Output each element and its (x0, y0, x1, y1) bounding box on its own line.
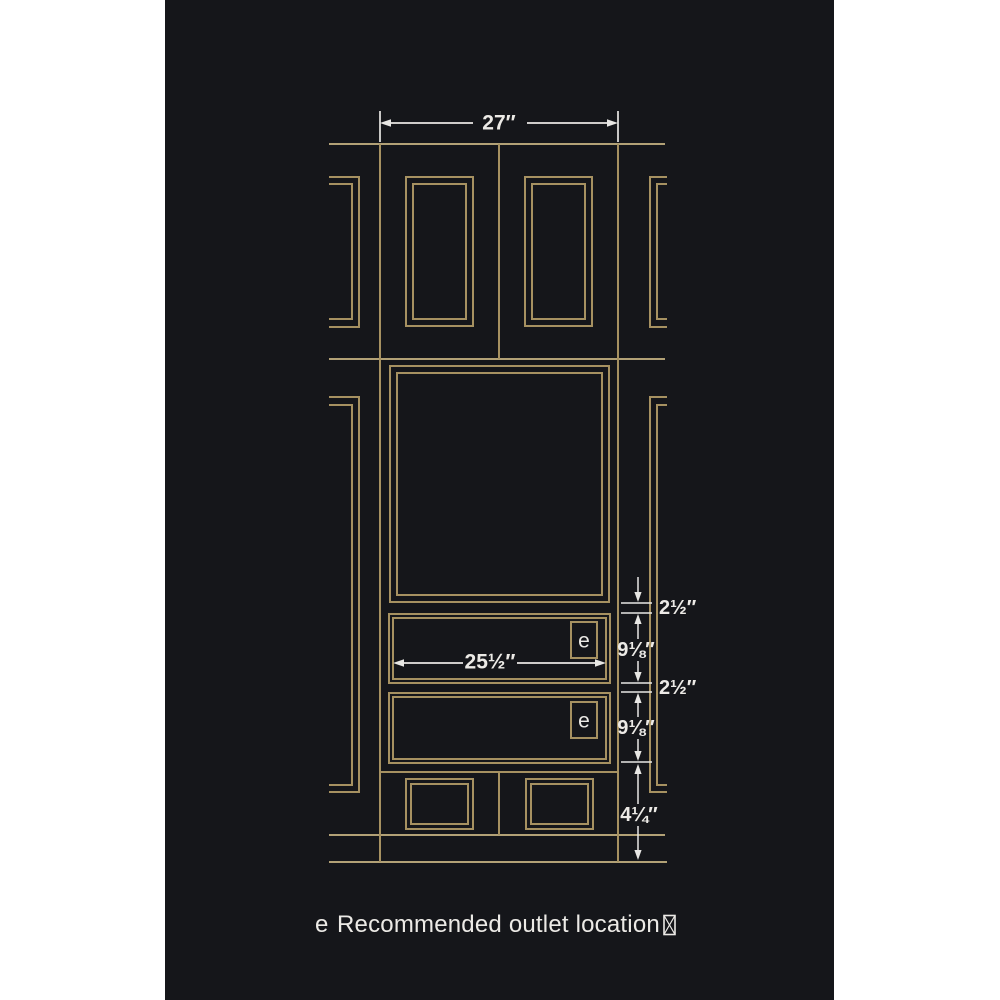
dim-label-drawer-1-height: 9⅛″ (617, 639, 655, 661)
arrow-up-icon (634, 693, 641, 703)
dim-label-toe-kick-height: 4¼″ (620, 804, 658, 826)
appliance-opening (390, 366, 609, 602)
dim-label-gap-top: 2½″ (659, 597, 697, 619)
right-wall-panel-mouldings (650, 177, 667, 792)
left-wall-panel-mouldings (329, 177, 359, 792)
arrow-right-icon (607, 119, 618, 127)
dim-label-drawer-opening-width: 25½″ (465, 651, 516, 674)
vertical-stiles (380, 144, 618, 862)
legend-outlet-label: Recommended outlet location (337, 911, 660, 939)
arrow-left-icon (393, 659, 404, 667)
outlet-marker-lower: e (578, 710, 590, 733)
page: e e (0, 0, 1000, 1000)
dimension-linework (380, 111, 652, 860)
drawer-2 (389, 693, 610, 763)
arrow-right-icon (595, 659, 606, 667)
dim-label-cabinet-width: 27″ (482, 112, 515, 135)
arrow-down-icon (634, 672, 641, 682)
missing-glyph-box-icon (663, 914, 676, 936)
arrow-down-icon (634, 751, 641, 761)
arrow-left-icon (380, 119, 391, 127)
cabinet-elevation-drawing: e e (165, 0, 834, 1000)
arrow-up-icon (634, 614, 641, 624)
dim-label-gap-middle: 2½″ (659, 677, 697, 699)
arrow-up-icon (634, 764, 641, 774)
arrow-down-icon (634, 592, 641, 602)
arrow-down-icon (634, 850, 641, 860)
outlet-marker-upper: e (578, 630, 590, 653)
dim-label-drawer-2-height: 9⅛″ (617, 717, 655, 739)
legend-outlet-marker: e (315, 911, 337, 939)
legend: e Recommended outlet location (315, 911, 676, 939)
cabinet-linework (329, 144, 667, 862)
installation-diagram-canvas: e e (165, 0, 834, 1000)
